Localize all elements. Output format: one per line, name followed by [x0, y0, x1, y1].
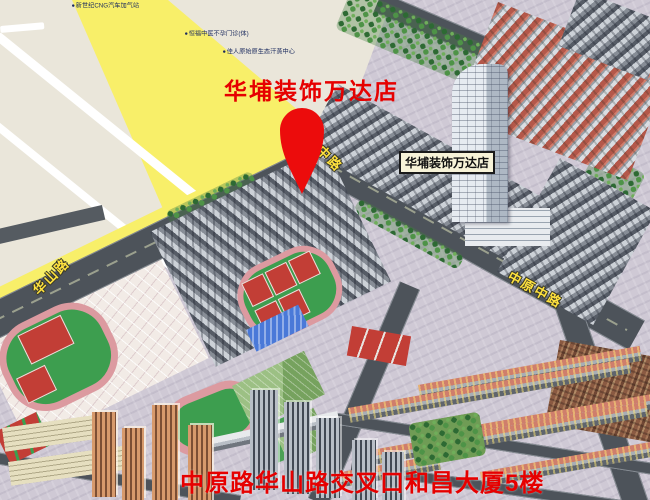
poi-text: 佳人原始原生态汗蒸中心 [227, 48, 295, 55]
poi-label[interactable]: 恒福中医不孕门诊(体) [185, 28, 249, 37]
location-pin-icon[interactable] [277, 104, 327, 196]
highrise-tower [152, 405, 178, 500]
poi-text: 恒福中医不孕门诊(体) [189, 30, 249, 37]
highrise-tower [122, 428, 144, 500]
store-title: 华埔装饰万达店 [224, 72, 399, 106]
map-canvas[interactable]: 新世纪CNG汽车加气站 恒福中医不孕门诊(体) 佳人原始原生态汗蒸中心 华山路 … [0, 0, 650, 500]
marker-label-box[interactable]: 华埔装饰万达店 [399, 151, 495, 174]
courtyard-trees [408, 411, 487, 467]
poi-dot-icon [185, 33, 187, 35]
highrise-tower [92, 412, 116, 497]
poi-label[interactable]: 新世纪CNG汽车加气站 [72, 0, 139, 9]
poi-dot-icon [223, 51, 225, 53]
landmark-tower [452, 64, 508, 222]
poi-dot-icon [72, 5, 74, 7]
address-caption: 中原路华山路交叉口和昌大厦5楼 [180, 463, 544, 498]
poi-text: 新世纪CNG汽车加气站 [76, 2, 139, 9]
poi-label[interactable]: 佳人原始原生态汗蒸中心 [223, 46, 295, 55]
